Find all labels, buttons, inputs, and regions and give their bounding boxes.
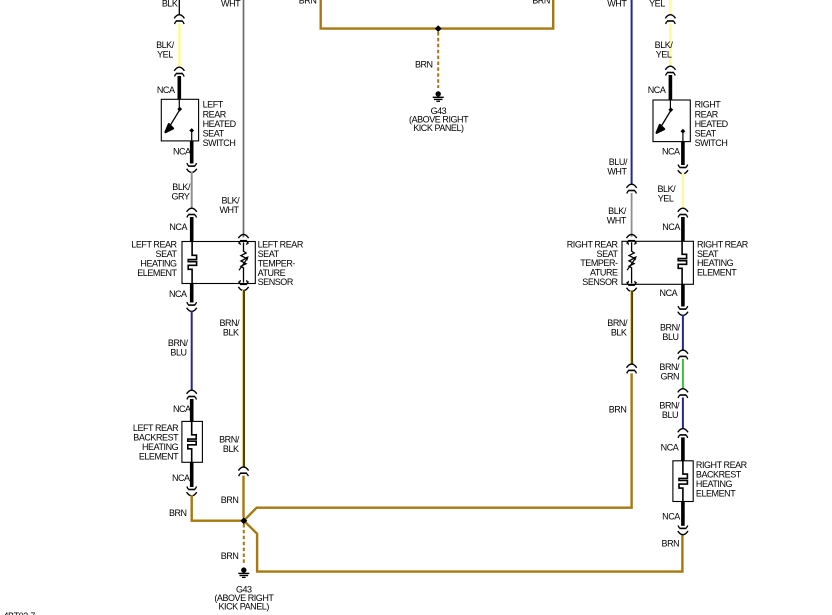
svg-text:NCA: NCA xyxy=(173,146,191,156)
svg-text:NCA: NCA xyxy=(660,288,678,298)
svg-text:ELEMENT: ELEMENT xyxy=(696,488,736,498)
svg-text:LEFT: LEFT xyxy=(203,100,224,110)
svg-text:WHT: WHT xyxy=(219,205,239,215)
svg-text:KICK PANEL): KICK PANEL) xyxy=(413,123,464,133)
svg-text:NCA: NCA xyxy=(661,442,679,452)
svg-text:BRN: BRN xyxy=(609,404,627,414)
svg-text:BLK/: BLK/ xyxy=(156,40,175,50)
svg-text:ELEMENT: ELEMENT xyxy=(139,451,179,461)
svg-text:BLK/: BLK/ xyxy=(221,195,240,205)
svg-text:BRN: BRN xyxy=(169,508,187,518)
svg-text:SENSOR: SENSOR xyxy=(258,277,294,287)
svg-text:BRN/: BRN/ xyxy=(659,362,680,372)
svg-text:REAR: REAR xyxy=(695,109,719,119)
svg-text:BRN: BRN xyxy=(532,0,550,6)
svg-text:YEL: YEL xyxy=(656,49,672,59)
svg-text:NCA: NCA xyxy=(648,85,666,95)
svg-text:BRN: BRN xyxy=(299,0,317,6)
svg-text:NCA: NCA xyxy=(662,222,680,232)
svg-text:BLU/: BLU/ xyxy=(609,157,628,167)
svg-text:NCA: NCA xyxy=(173,404,191,414)
svg-text:HEATED: HEATED xyxy=(203,119,237,129)
svg-text:BLK/: BLK/ xyxy=(172,182,191,192)
svg-text:YEL: YEL xyxy=(649,0,665,9)
svg-text:NCA: NCA xyxy=(169,289,187,299)
svg-text:BRN/: BRN/ xyxy=(660,322,681,332)
svg-text:BLK: BLK xyxy=(162,0,178,9)
svg-text:NCA: NCA xyxy=(662,511,680,521)
svg-text:WHT: WHT xyxy=(607,0,627,9)
svg-text:BRN: BRN xyxy=(415,59,433,69)
svg-text:YEL: YEL xyxy=(157,49,173,59)
svg-text:BLK/: BLK/ xyxy=(655,40,674,50)
svg-text:NCA: NCA xyxy=(157,85,175,95)
svg-text:NCA: NCA xyxy=(172,473,190,483)
svg-text:SENSOR: SENSOR xyxy=(582,277,618,287)
svg-text:ELEMENT: ELEMENT xyxy=(137,268,177,278)
svg-text:NCA: NCA xyxy=(169,222,187,232)
svg-text:BLK: BLK xyxy=(223,444,239,454)
svg-text:GRN: GRN xyxy=(660,371,679,381)
svg-text:ELEMENT: ELEMENT xyxy=(697,267,737,277)
svg-text:BLK/: BLK/ xyxy=(657,184,676,194)
svg-text:KICK PANEL): KICK PANEL) xyxy=(218,601,269,611)
svg-text:WHT: WHT xyxy=(607,216,627,226)
svg-text:REAR: REAR xyxy=(203,109,227,119)
svg-text:WHT: WHT xyxy=(607,166,627,176)
svg-text:BRN/: BRN/ xyxy=(659,400,680,410)
svg-text:SEAT: SEAT xyxy=(695,129,717,139)
svg-text:GRY: GRY xyxy=(172,191,190,201)
svg-text:BLU: BLU xyxy=(170,347,186,357)
svg-text:YEL: YEL xyxy=(658,194,674,204)
svg-text:BLK: BLK xyxy=(223,328,239,338)
svg-text:BLK: BLK xyxy=(611,328,627,338)
svg-text:SEAT: SEAT xyxy=(203,129,225,139)
svg-text:SWITCH: SWITCH xyxy=(203,138,236,148)
svg-text:HEATED: HEATED xyxy=(695,119,729,129)
svg-text:BLU: BLU xyxy=(662,410,678,420)
svg-text:NCA: NCA xyxy=(662,146,680,156)
svg-text:BRN: BRN xyxy=(221,551,239,561)
svg-text:BRN/: BRN/ xyxy=(219,435,240,445)
svg-text:BRN/: BRN/ xyxy=(219,318,240,328)
svg-text:RIGHT: RIGHT xyxy=(695,100,722,110)
svg-text:BLK/: BLK/ xyxy=(608,206,627,216)
svg-text:BRN/: BRN/ xyxy=(607,318,628,328)
svg-text:BLU: BLU xyxy=(662,332,678,342)
svg-text:SWITCH: SWITCH xyxy=(695,138,728,148)
svg-text:BRN/: BRN/ xyxy=(168,338,189,348)
svg-text:4BT03-7: 4BT03-7 xyxy=(4,611,36,615)
svg-text:WHT: WHT xyxy=(221,0,241,9)
svg-text:BRN: BRN xyxy=(662,538,680,548)
svg-text:BRN: BRN xyxy=(221,495,239,505)
